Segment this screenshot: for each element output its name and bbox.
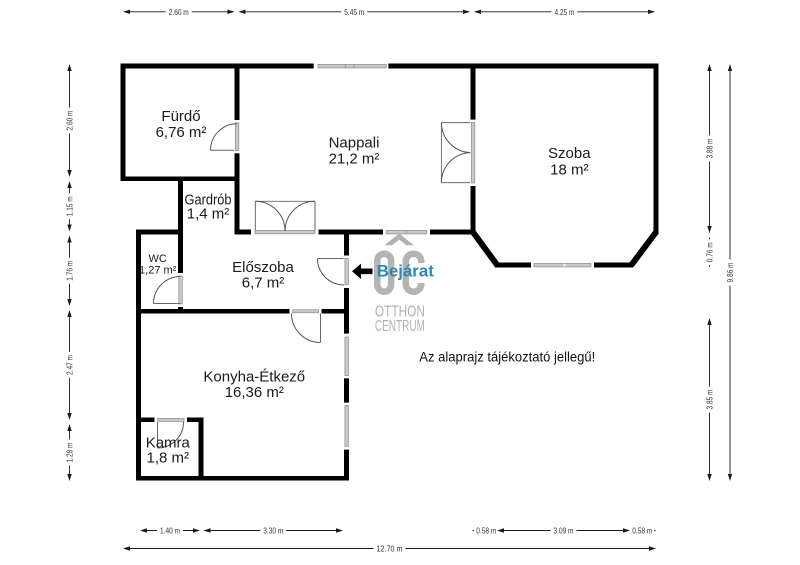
svg-text:2.60 m: 2.60 m bbox=[66, 110, 75, 130]
svg-text:WC: WC bbox=[149, 253, 167, 265]
svg-text:Előszoba: Előszoba bbox=[232, 259, 294, 276]
svg-text:18 m²: 18 m² bbox=[550, 161, 588, 178]
svg-text:5.45 m: 5.45 m bbox=[344, 8, 364, 17]
svg-text:0.58 m: 0.58 m bbox=[476, 527, 496, 536]
svg-text:21,2 m²: 21,2 m² bbox=[329, 150, 380, 167]
svg-text:3.85 m: 3.85 m bbox=[706, 389, 715, 409]
svg-text:Az alaprajz tájékoztató jelleg: Az alaprajz tájékoztató jellegű! bbox=[419, 350, 595, 365]
svg-text:4.25 m: 4.25 m bbox=[555, 8, 575, 17]
svg-text:0.58 m: 0.58 m bbox=[632, 527, 652, 536]
svg-text:1.28 m: 1.28 m bbox=[66, 442, 75, 462]
svg-text:Konyha-Étkező: Konyha-Étkező bbox=[203, 369, 305, 386]
svg-text:6,76 m²: 6,76 m² bbox=[156, 124, 207, 141]
svg-text:Szoba: Szoba bbox=[548, 145, 591, 162]
svg-text:6,7 m²: 6,7 m² bbox=[242, 275, 285, 292]
svg-text:3.30 m: 3.30 m bbox=[263, 527, 283, 536]
svg-text:1.15 m: 1.15 m bbox=[66, 196, 75, 216]
svg-text:12.70 m: 12.70 m bbox=[377, 545, 403, 554]
svg-text:1,4 m²: 1,4 m² bbox=[187, 205, 230, 222]
svg-text:Nappali: Nappali bbox=[329, 135, 380, 152]
svg-text:Bejárat: Bejárat bbox=[377, 261, 434, 280]
svg-text:2.60 m: 2.60 m bbox=[169, 8, 189, 17]
svg-text:1.40 m: 1.40 m bbox=[160, 527, 180, 536]
svg-text:Fürdő: Fürdő bbox=[161, 108, 200, 125]
svg-text:3.88 m: 3.88 m bbox=[706, 138, 715, 158]
svg-text:3.09 m: 3.09 m bbox=[554, 527, 574, 536]
svg-text:CENTRUM: CENTRUM bbox=[375, 318, 425, 335]
svg-text:0.76 m: 0.76 m bbox=[706, 242, 715, 262]
svg-text:1,27 m²: 1,27 m² bbox=[139, 265, 177, 277]
svg-text:1,8 m²: 1,8 m² bbox=[147, 449, 190, 466]
svg-text:16,36 m²: 16,36 m² bbox=[225, 384, 284, 401]
svg-text:2.47 m: 2.47 m bbox=[66, 355, 75, 375]
svg-text:9.86 m: 9.86 m bbox=[726, 262, 735, 282]
svg-text:1.76 m: 1.76 m bbox=[66, 260, 75, 280]
